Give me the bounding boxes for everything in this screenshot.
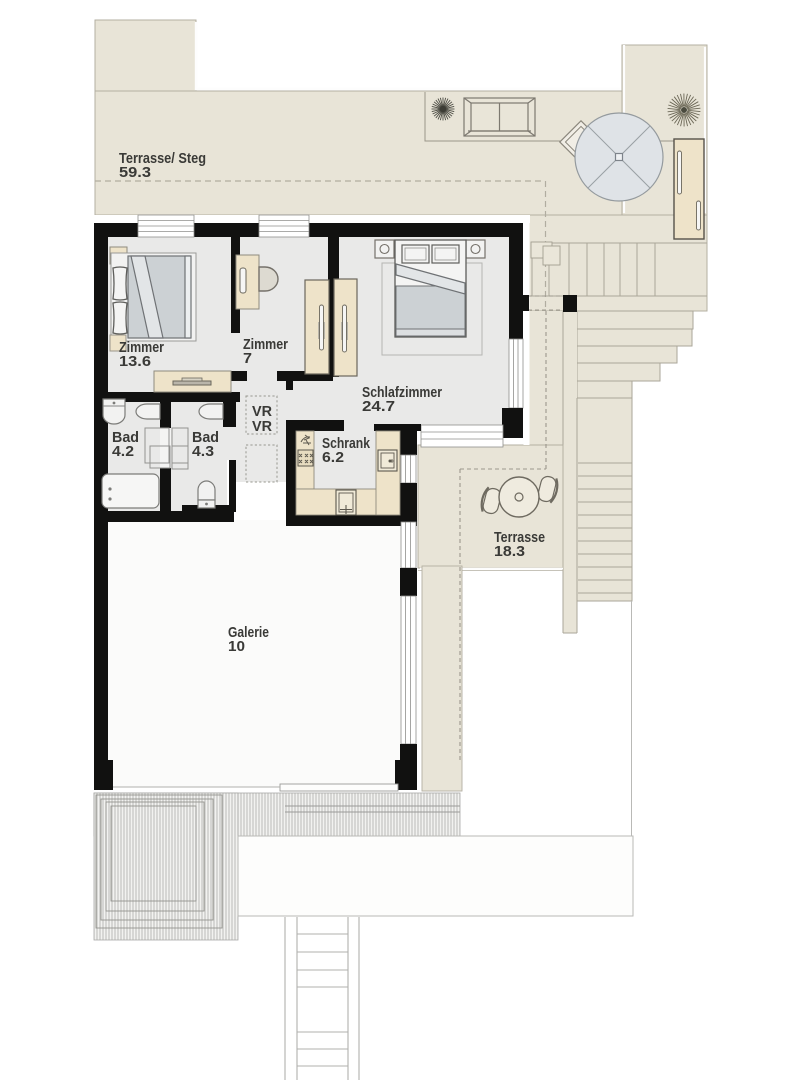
svg-text:VR: VR: [252, 418, 272, 435]
svg-text:13.6: 13.6: [119, 353, 151, 370]
svg-text:59.3: 59.3: [119, 164, 151, 181]
svg-text:4.3: 4.3: [192, 443, 214, 460]
svg-text:10: 10: [228, 638, 245, 655]
svg-text:18.3: 18.3: [494, 543, 525, 560]
svg-text:24.7: 24.7: [362, 398, 395, 415]
svg-text:4.2: 4.2: [112, 443, 134, 460]
svg-text:6.2: 6.2: [322, 449, 344, 466]
svg-text:7: 7: [243, 350, 252, 367]
